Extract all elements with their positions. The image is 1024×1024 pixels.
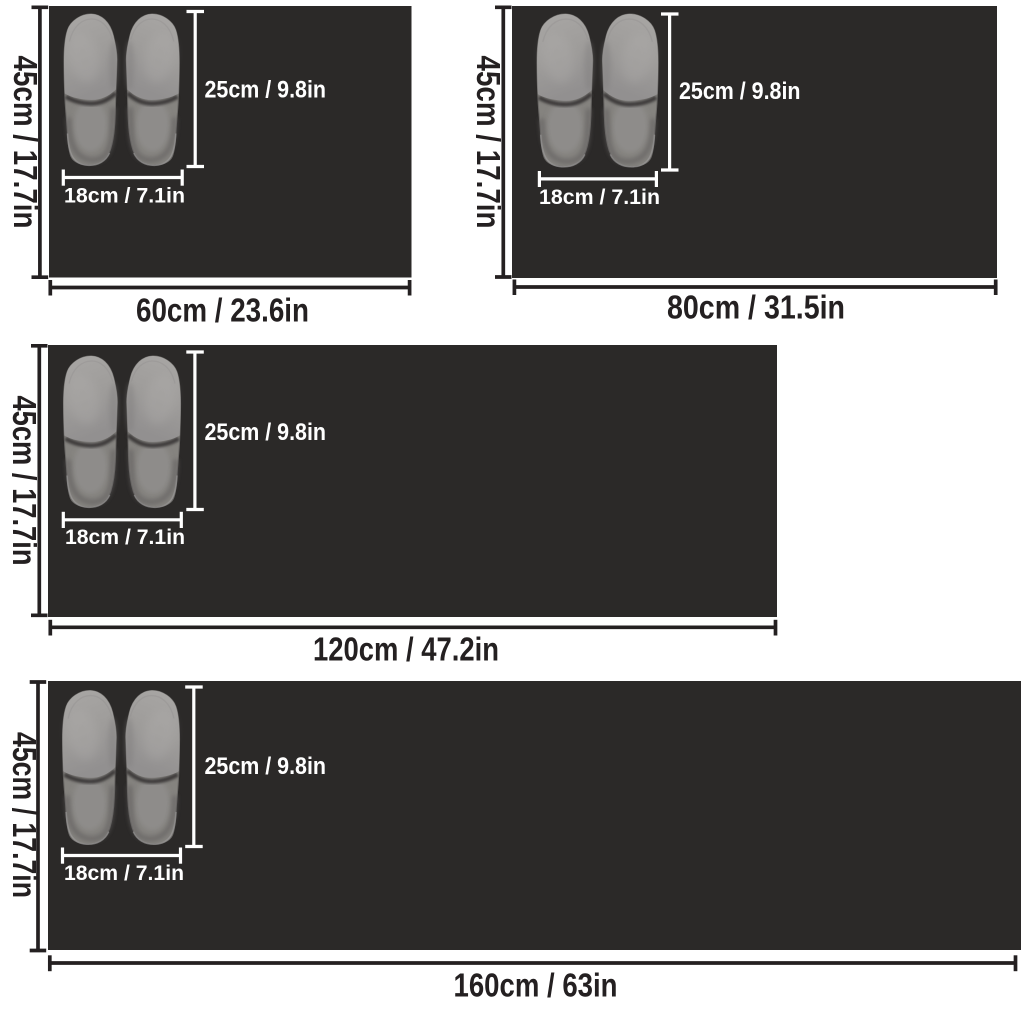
svg-text:25cm / 9.8in: 25cm / 9.8in	[205, 77, 327, 104]
svg-text:18cm / 7.1in: 18cm / 7.1in	[64, 184, 185, 208]
svg-text:120cm / 47.2in: 120cm / 47.2in	[313, 632, 499, 669]
svg-text:45cm / 17.7in: 45cm / 17.7in	[470, 56, 507, 229]
svg-text:45cm / 17.7in: 45cm / 17.7in	[6, 732, 43, 898]
svg-text:60cm / 23.6in: 60cm / 23.6in	[136, 293, 309, 330]
svg-text:45cm / 17.7in: 45cm / 17.7in	[7, 56, 44, 229]
svg-text:160cm / 63in: 160cm / 63in	[454, 968, 618, 1005]
svg-text:25cm / 9.8in: 25cm / 9.8in	[205, 753, 327, 780]
svg-text:25cm / 9.8in: 25cm / 9.8in	[679, 78, 801, 105]
svg-text:18cm / 7.1in: 18cm / 7.1in	[539, 185, 660, 209]
svg-text:18cm / 7.1in: 18cm / 7.1in	[64, 861, 184, 885]
svg-text:80cm / 31.5in: 80cm / 31.5in	[667, 290, 845, 327]
svg-text:18cm / 7.1in: 18cm / 7.1in	[65, 525, 185, 549]
svg-text:45cm / 17.7in: 45cm / 17.7in	[6, 396, 43, 566]
svg-text:25cm / 9.8in: 25cm / 9.8in	[205, 419, 327, 446]
